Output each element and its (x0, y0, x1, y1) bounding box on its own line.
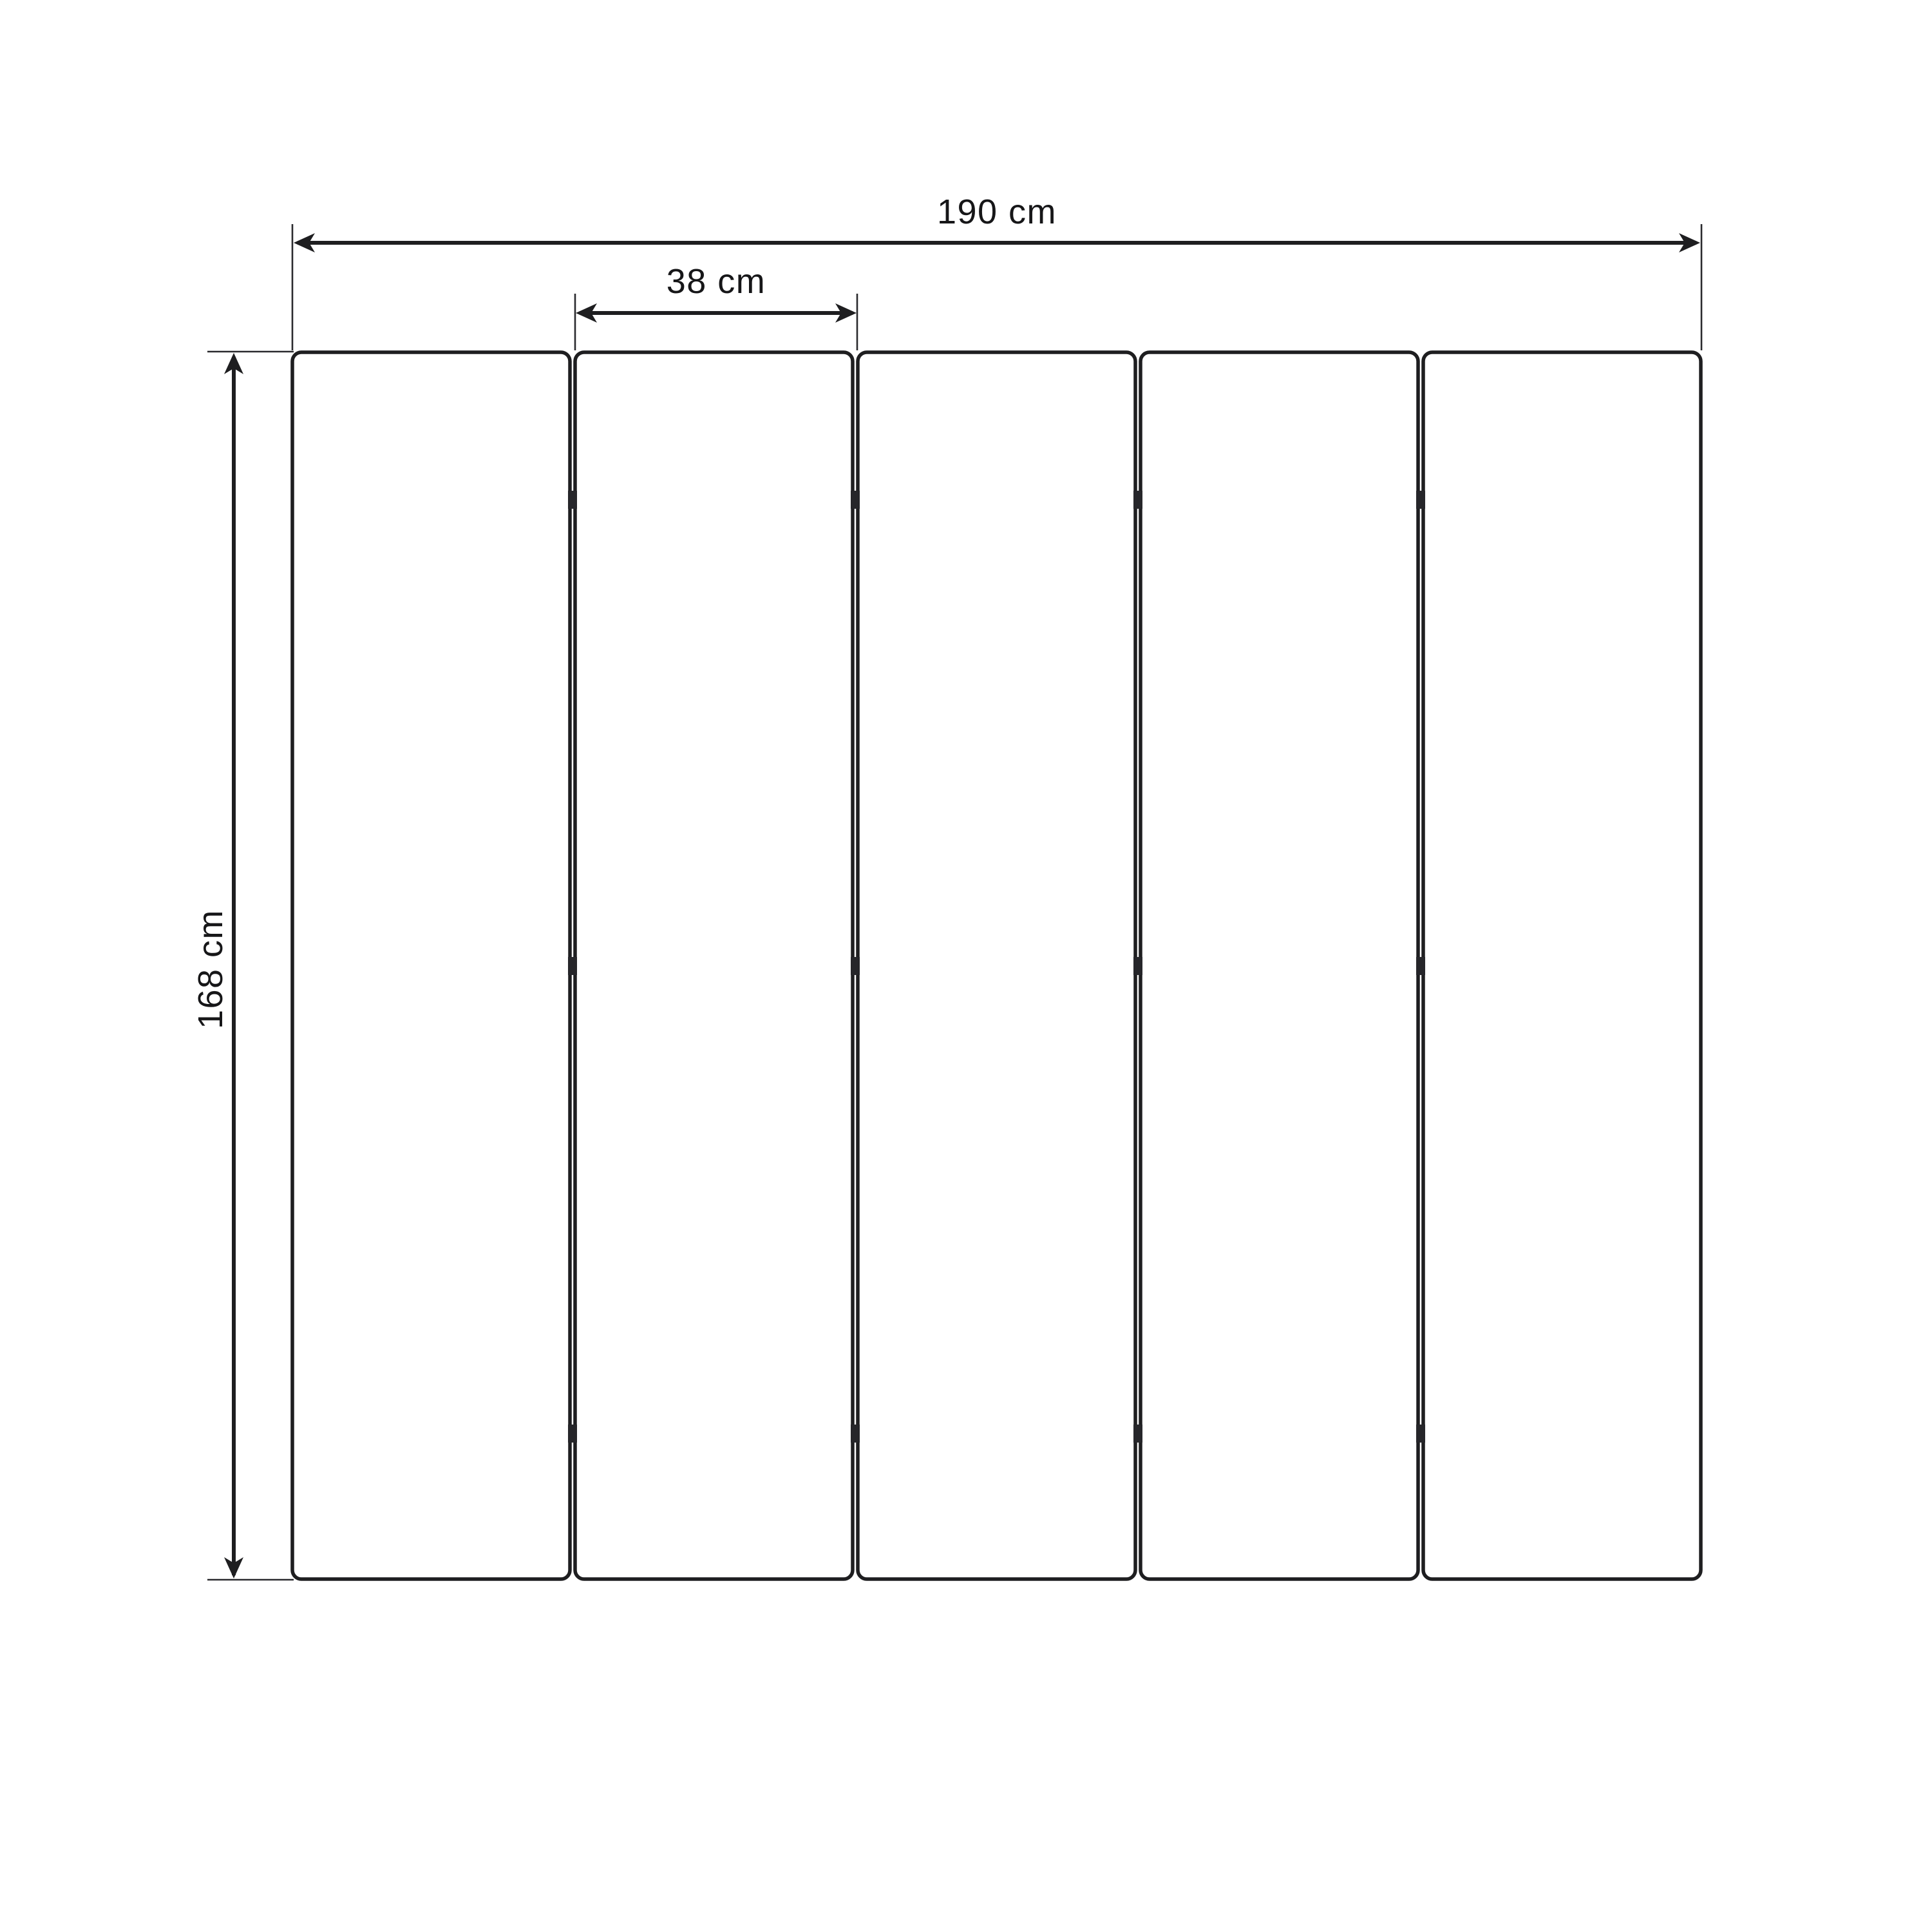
hinge (1133, 1425, 1142, 1443)
hinge (1416, 957, 1425, 975)
dimension-total-width (294, 233, 1700, 252)
folding-screen-drawing (0, 0, 1932, 1932)
panel-5 (1423, 352, 1701, 1579)
hinge (851, 491, 860, 509)
panel-1 (292, 352, 570, 1579)
hinge (568, 1425, 577, 1443)
hinge (568, 957, 577, 975)
hinge (1416, 491, 1425, 509)
panel-3 (858, 352, 1135, 1579)
panel-4 (1141, 352, 1418, 1579)
total-width-label: 190 cm (937, 193, 1057, 231)
dimension-panel-width (576, 303, 857, 323)
hinge (1133, 957, 1142, 975)
hinge (568, 491, 577, 509)
panel-group (292, 352, 1701, 1579)
panel-width-label: 38 cm (667, 263, 766, 300)
hinge (1416, 1425, 1425, 1443)
hinge (1133, 491, 1142, 509)
hinge (851, 1425, 860, 1443)
panel-2 (575, 352, 853, 1579)
diagram-canvas: 190 cm 38 cm 168 cm (0, 0, 1932, 1932)
height-label: 168 cm (192, 909, 229, 1029)
hinge (851, 957, 860, 975)
